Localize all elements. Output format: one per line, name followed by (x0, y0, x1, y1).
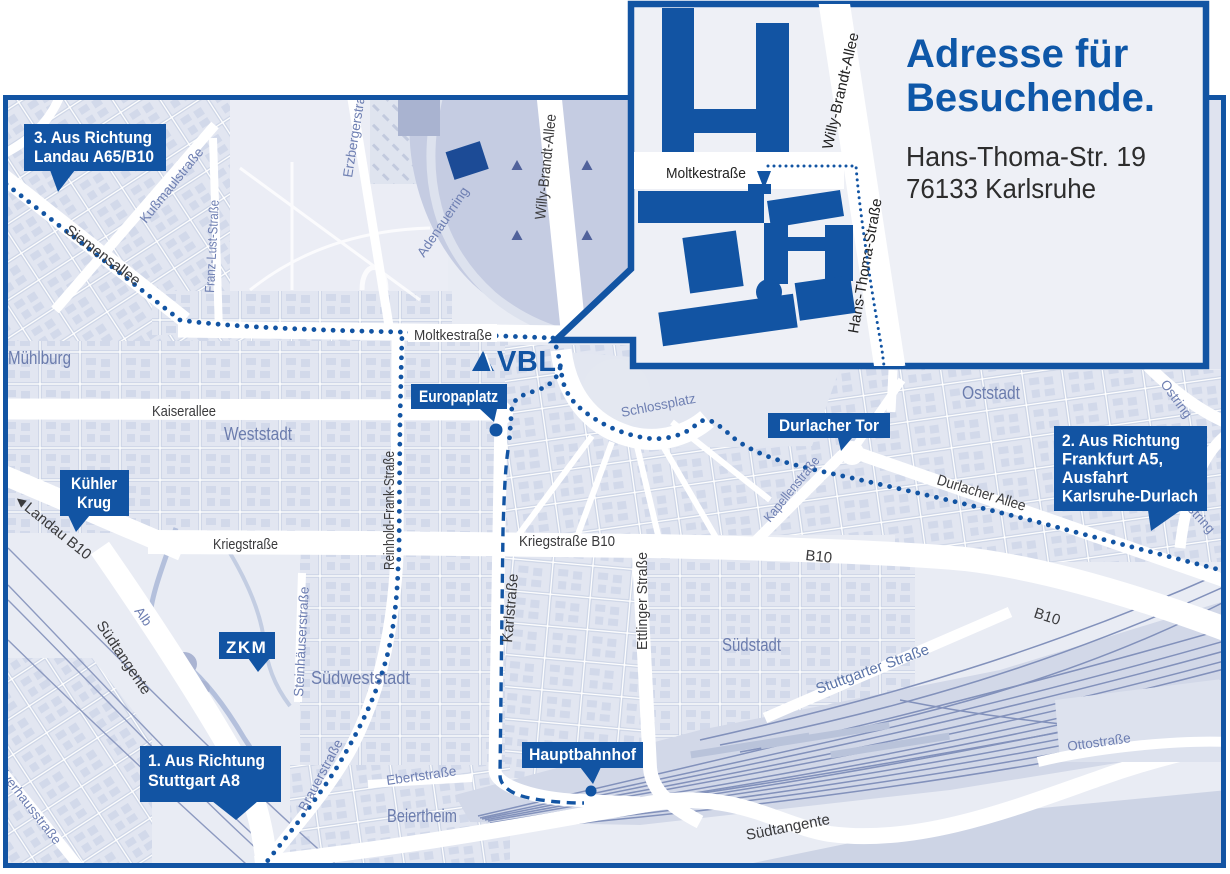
svg-text:Reinhold-Frank-Straße: Reinhold-Frank-Straße (381, 451, 398, 570)
svg-text:Krug: Krug (77, 493, 111, 512)
svg-text:76133 Karlsruhe: 76133 Karlsruhe (906, 173, 1096, 204)
svg-text:2. Aus Richtung: 2. Aus Richtung (1062, 431, 1180, 450)
svg-text:Europaplatz: Europaplatz (419, 387, 498, 406)
svg-text:Moltkestraße: Moltkestraße (666, 165, 746, 182)
svg-text:Hans-Thoma-Str. 19: Hans-Thoma-Str. 19 (906, 141, 1146, 172)
svg-text:Moltkestraße: Moltkestraße (414, 327, 492, 344)
svg-text:Landau A65/B10: Landau A65/B10 (34, 147, 154, 166)
svg-text:Beiertheim: Beiertheim (387, 806, 457, 826)
svg-text:B10: B10 (805, 547, 833, 567)
svg-text:Karlsruhe-Durlach: Karlsruhe-Durlach (1062, 487, 1198, 506)
svg-text:Oststadt: Oststadt (962, 383, 1020, 403)
svg-text:Südweststadt: Südweststadt (311, 668, 410, 688)
svg-text:Ausfahrt: Ausfahrt (1062, 468, 1128, 487)
svg-text:Kriegstraße: Kriegstraße (213, 536, 278, 553)
svg-text:Frankfurt A5,: Frankfurt A5, (1062, 450, 1163, 469)
svg-text:Weststadt: Weststadt (224, 424, 292, 444)
svg-text:VBL: VBL (497, 346, 557, 378)
svg-text:Kühler: Kühler (71, 474, 117, 493)
svg-text:Besuchende.: Besuchende. (906, 76, 1155, 120)
svg-text:Südstadt: Südstadt (722, 635, 781, 655)
svg-text:Hauptbahnhof: Hauptbahnhof (529, 745, 636, 764)
svg-text:Kaiserallee: Kaiserallee (152, 403, 216, 420)
svg-text:Mühlburg: Mühlburg (8, 348, 71, 368)
svg-text:Adresse für: Adresse für (906, 32, 1128, 76)
svg-text:Kriegstraße B10: Kriegstraße B10 (519, 533, 615, 550)
svg-text:3. Aus Richtung: 3. Aus Richtung (34, 128, 152, 147)
svg-text:Stuttgart A8: Stuttgart A8 (148, 771, 240, 790)
svg-text:Ettlinger Straße: Ettlinger Straße (634, 552, 651, 650)
svg-text:ZKM: ZKM (226, 638, 267, 657)
svg-text:Durlacher Tor: Durlacher Tor (779, 416, 879, 435)
svg-text:1. Aus Richtung: 1. Aus Richtung (148, 751, 265, 770)
